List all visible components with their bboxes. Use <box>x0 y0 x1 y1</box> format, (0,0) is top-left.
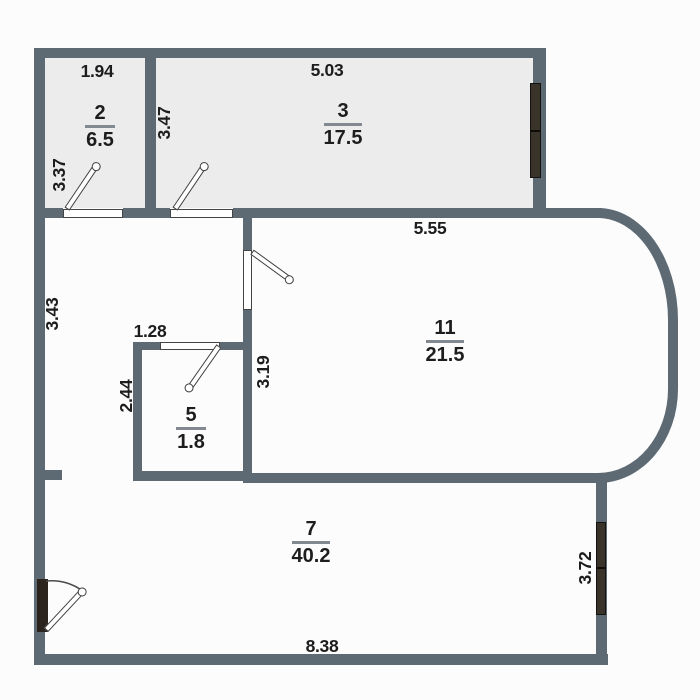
fraction-line <box>324 123 362 126</box>
wall-room11-left-upper <box>243 218 252 250</box>
room2-door <box>63 209 123 218</box>
room3-window-icon <box>530 83 541 178</box>
door-knob-icon <box>183 382 196 395</box>
dim-room11-top: 5.55 <box>395 218 465 238</box>
outer-wall-top <box>34 48 546 58</box>
room11-door <box>243 250 252 310</box>
fraction-line <box>176 427 206 430</box>
dim-room11-left: 3.19 <box>253 337 273 407</box>
room11-door-leaf-icon <box>250 250 292 283</box>
dim-room3-left: 3.47 <box>154 88 174 158</box>
room7-area: 40.2 <box>292 546 331 566</box>
dim-room3-top: 5.03 <box>292 60 362 80</box>
floor-plan: 1.94 5.03 5.55 1.28 8.38 3.47 3.37 3.43 … <box>0 0 700 700</box>
room3-area: 17.5 <box>324 128 363 148</box>
wall-rooms23-bottom-b <box>123 208 170 218</box>
wall-room11-top <box>233 208 602 218</box>
room11-area: 21.5 <box>426 345 465 365</box>
room5-door <box>160 342 220 350</box>
room2-label: 2 6.5 <box>65 103 135 150</box>
room5-number: 5 <box>185 405 196 425</box>
dim-room7-bottom: 8.38 <box>287 636 357 656</box>
fraction-line <box>426 340 464 343</box>
wall-room5-bottom <box>133 471 252 481</box>
wall-room5-top-b <box>220 342 252 350</box>
dim-hall-left: 3.43 <box>42 279 62 349</box>
room11-label: 11 21.5 <box>410 318 480 365</box>
dim-room2-width: 1.94 <box>62 61 132 81</box>
entrance-door-swing-icon <box>44 574 90 624</box>
fraction-line <box>85 125 115 128</box>
window-divider <box>531 130 540 132</box>
room7-window-icon <box>596 522 606 615</box>
wall-room11-left-lower <box>243 310 252 481</box>
room3-label: 3 17.5 <box>308 101 378 148</box>
dim-room5-left: 2.44 <box>116 361 136 431</box>
fraction-line <box>292 541 330 544</box>
room2-area: 6.5 <box>86 130 114 150</box>
room7-number: 7 <box>305 519 316 539</box>
wall-stub-left <box>38 470 62 480</box>
dim-room2-left: 3.37 <box>49 140 69 210</box>
dim-room5-top: 1.28 <box>115 321 185 341</box>
dim-room7-right: 3.72 <box>575 533 595 603</box>
room2-number: 2 <box>94 103 105 123</box>
room3-door <box>170 209 233 218</box>
room5-door-leaf-icon <box>186 344 221 391</box>
wall-room11-bottom <box>243 473 602 483</box>
door-knob-icon <box>283 273 296 286</box>
room5-label: 5 1.8 <box>156 405 226 452</box>
wall-room5-top-a <box>133 342 160 350</box>
room11-number: 11 <box>434 318 455 338</box>
room7-label: 7 40.2 <box>276 519 346 566</box>
room11-bay-wall <box>594 208 678 483</box>
room5-area: 1.8 <box>177 432 205 452</box>
outer-wall-left <box>34 48 45 665</box>
room3-number: 3 <box>337 101 348 121</box>
window-divider <box>597 567 605 569</box>
